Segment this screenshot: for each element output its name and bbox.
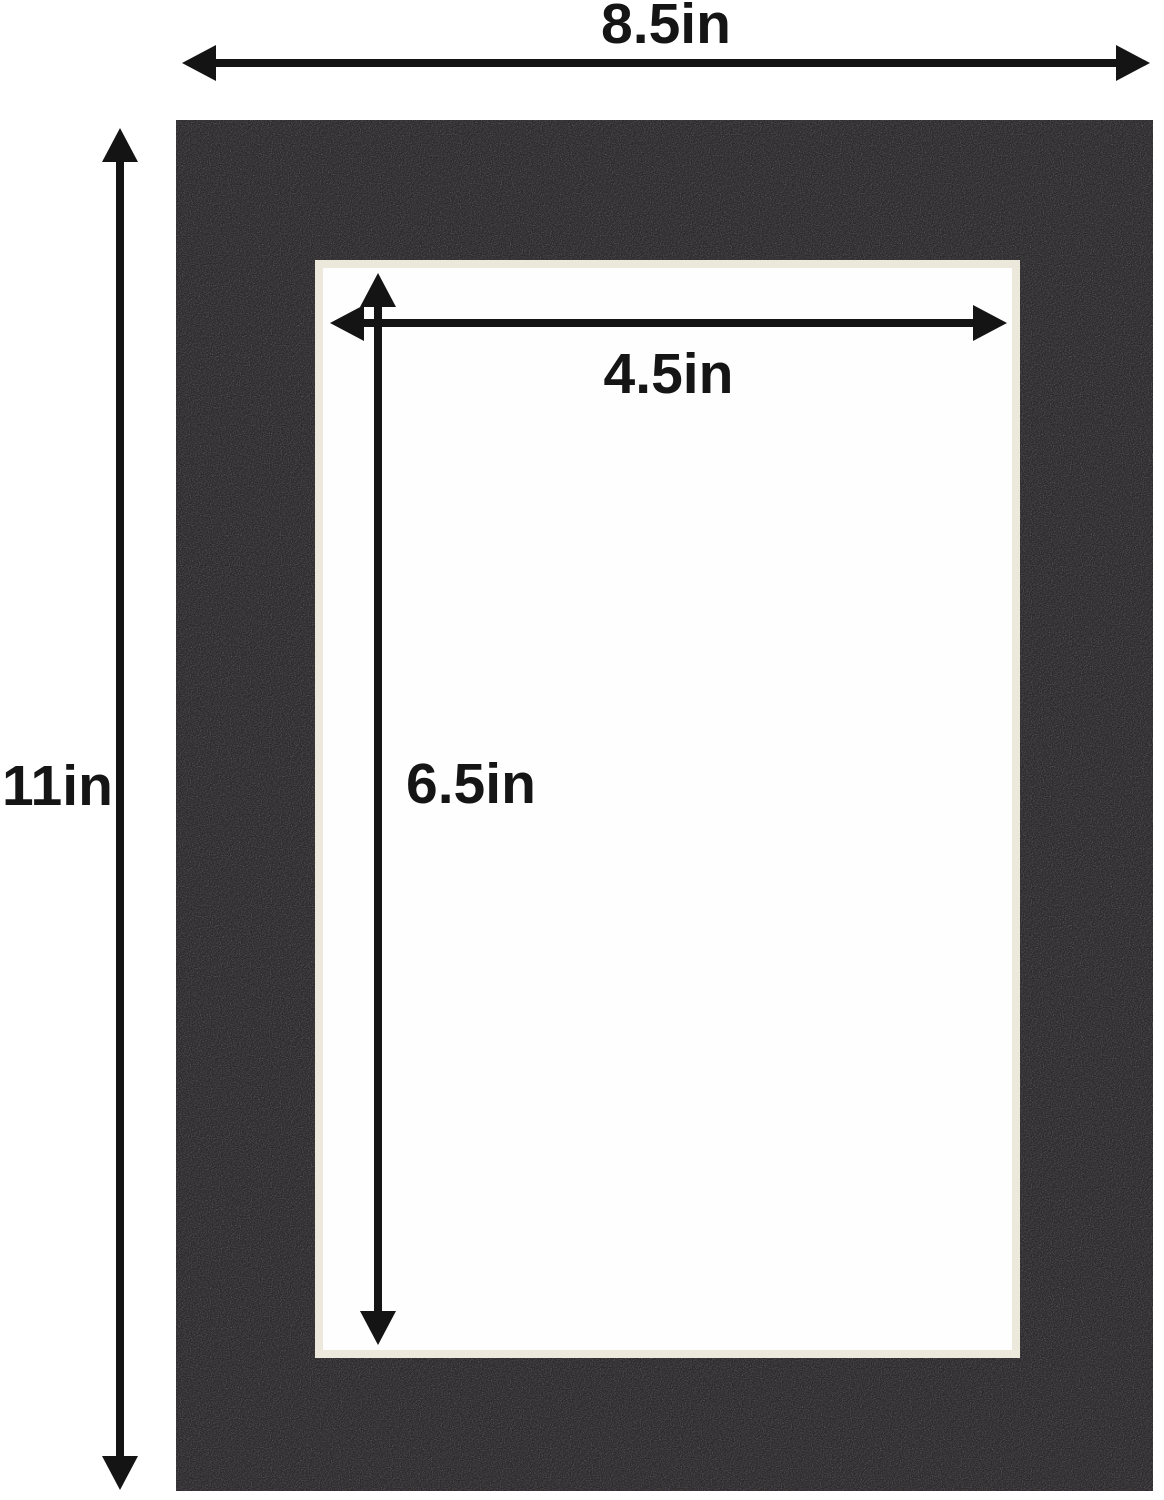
arrowhead-right-icon [973,305,1007,341]
mat-dimension-diagram: 8.5in 11in 4.5in 6.5in [0,0,1164,1500]
arrowhead-down-icon [360,1311,396,1345]
arrowhead-down-icon [102,1456,138,1490]
opening-height-arrow-line [374,303,382,1315]
arrowhead-up-icon [102,128,138,162]
opening-height-label: 6.5in [406,754,536,814]
outer-width-label: 8.5in [182,0,1150,54]
outer-height-arrow-line [116,158,124,1460]
arrowhead-up-icon [360,273,396,307]
outer-width-arrow-line [212,59,1120,67]
opening-width-arrow-line [360,319,977,327]
opening-width-label: 4.5in [330,344,1007,404]
arrowhead-left-icon [330,305,364,341]
outer-height-label: 11in [2,756,113,816]
